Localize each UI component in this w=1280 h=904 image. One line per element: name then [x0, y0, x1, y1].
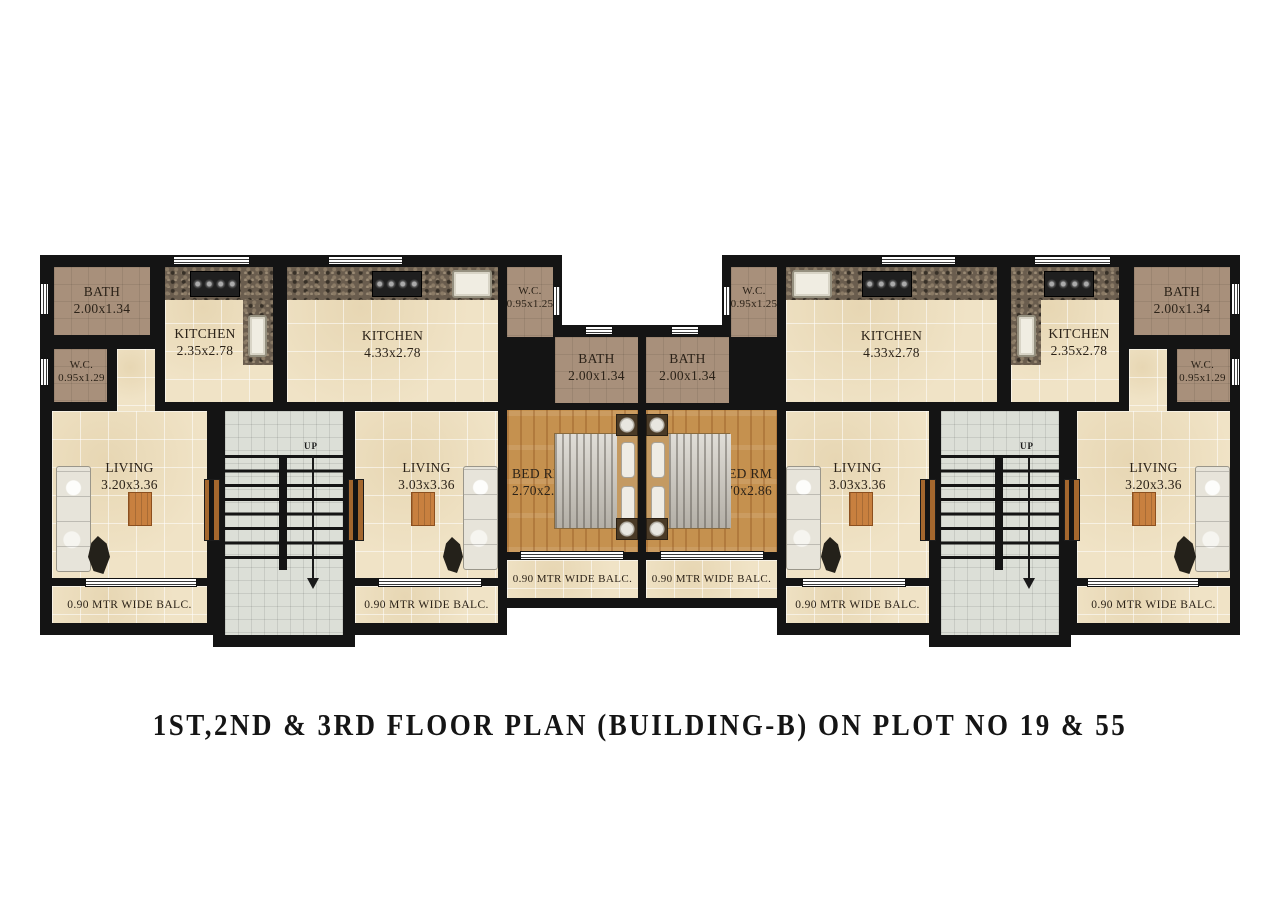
room-wc-far-left: W.C. 0.95x1.29 — [54, 349, 107, 402]
stair-direction-arrow — [1028, 456, 1030, 578]
balcony-center-left: 0.90 MTR WIDE BALC. — [355, 586, 498, 623]
room-bath-far-right: BATH 2.00x1.34 — [1134, 267, 1230, 335]
room-bath-far-left: BATH 2.00x1.34 — [54, 267, 150, 335]
balcony-far-left: 0.90 MTR WIDE BALC. — [52, 586, 207, 623]
room-bath-center-left: BATH 2.00x1.34 — [555, 337, 638, 403]
window-icon — [1034, 256, 1111, 265]
room-bath-center-right: BATH 2.00x1.34 — [646, 337, 729, 403]
room-dims-label: 2.00x1.34 — [555, 367, 638, 384]
room-dims-label: 2.00x1.34 — [54, 300, 150, 317]
stair-arrow-head — [1023, 578, 1035, 589]
stair-direction-arrow — [312, 456, 314, 578]
room-name-label: BATH — [1134, 283, 1230, 300]
bed-pillow — [621, 486, 635, 522]
room-label: W.C. 0.95x1.29 — [50, 359, 113, 385]
bed-blanket — [555, 434, 617, 528]
balcony-label: 0.90 MTR WIDE BALC. — [52, 598, 207, 610]
stairwell-foot-left — [213, 635, 355, 647]
room-dims-label: 2.00x1.34 — [646, 367, 729, 384]
bed-icon — [554, 433, 638, 529]
balcony-far-right: 0.90 MTR WIDE BALC. — [1077, 586, 1230, 623]
room-label: KITCHEN 4.33x2.78 — [786, 327, 997, 362]
room-label: KITCHEN 4.33x2.78 — [287, 327, 498, 362]
room-label: KITCHEN 2.35x2.78 — [1039, 325, 1119, 360]
sofa-icon — [786, 466, 821, 570]
room-label: W.C. 0.95x1.25 — [502, 285, 558, 311]
room-label: BATH 2.00x1.34 — [646, 350, 729, 385]
room-name-label: KITCHEN — [1039, 325, 1119, 342]
stair-arrow-head — [307, 578, 319, 589]
stair-treads — [1003, 455, 1059, 570]
room-dims-label: 0.95x1.29 — [50, 372, 113, 385]
window-icon — [723, 286, 731, 316]
room-dims-label: 0.95x1.29 — [1171, 372, 1234, 385]
room-label: BATH 2.00x1.34 — [54, 283, 150, 318]
bed-blanket — [669, 434, 731, 528]
stair-up-label: UP — [1012, 441, 1042, 451]
balcony-center-right: 0.90 MTR WIDE BALC. — [786, 586, 929, 623]
room-name-label: BATH — [646, 350, 729, 367]
window-icon — [85, 578, 197, 587]
room-dims-label: 0.95x1.25 — [726, 298, 782, 311]
sink-icon — [792, 270, 832, 298]
room-label: KITCHEN 2.35x2.78 — [165, 325, 245, 360]
window-icon — [1231, 283, 1240, 315]
bed-pillow — [651, 442, 665, 478]
door-icon — [920, 479, 936, 541]
sofa-icon — [463, 466, 498, 570]
nightstand-icon — [646, 414, 668, 436]
corridor-far-left — [117, 349, 155, 411]
window-icon — [553, 286, 561, 316]
balcony-bed-right: 0.90 MTR WIDE BALC. — [646, 560, 777, 598]
room-name-label: W.C. — [502, 285, 558, 298]
window-icon — [520, 551, 624, 560]
window-icon — [40, 358, 49, 386]
stove-icon — [372, 271, 422, 297]
stair-treads — [941, 455, 995, 570]
room-dims-label: 4.33x2.78 — [786, 344, 997, 361]
sink-icon — [1017, 315, 1036, 357]
room-wc-far-right: W.C. 0.95x1.29 — [1177, 349, 1230, 402]
room-name-label: KITCHEN — [165, 325, 245, 342]
room-name-label: BATH — [54, 283, 150, 300]
duct-notch — [562, 255, 722, 325]
window-icon — [1087, 578, 1199, 587]
stairwell-foot-right — [929, 635, 1071, 647]
balcony-label: 0.90 MTR WIDE BALC. — [1077, 598, 1230, 610]
balcony-bed-left: 0.90 MTR WIDE BALC. — [507, 560, 638, 598]
room-name-label: W.C. — [50, 359, 113, 372]
room-dims-label: 2.00x1.34 — [1134, 300, 1230, 317]
room-label: W.C. 0.95x1.25 — [726, 285, 782, 311]
nightstand-icon — [616, 518, 638, 540]
sofa-icon — [56, 466, 91, 572]
plan-title: 1ST,2ND & 3RD FLOOR PLAN (BUILDING-B) ON… — [0, 708, 1280, 743]
room-name-label: BATH — [555, 350, 638, 367]
window-icon — [671, 326, 699, 335]
sofa-icon — [1195, 466, 1230, 572]
balcony-label: 0.90 MTR WIDE BALC. — [786, 598, 929, 610]
window-icon — [173, 256, 250, 265]
room-label: BATH 2.00x1.34 — [1134, 283, 1230, 318]
table-icon — [128, 492, 152, 526]
corridor-far-right — [1129, 349, 1167, 411]
window-icon — [40, 283, 49, 315]
room-dims-label: 4.33x2.78 — [287, 344, 498, 361]
table-icon — [1132, 492, 1156, 526]
sink-icon — [452, 270, 492, 298]
floor-plan-page: BATH 2.00x1.34 W.C. 0.95x1.29 KITCHEN 2.… — [0, 0, 1280, 904]
door-icon — [1064, 479, 1080, 541]
stair-treads — [287, 455, 343, 570]
sink-icon — [248, 315, 267, 357]
stair-treads — [225, 455, 279, 570]
room-wc-center-left: W.C. 0.95x1.25 — [507, 267, 553, 337]
room-wc-center-right: W.C. 0.95x1.25 — [731, 267, 777, 337]
window-icon — [1231, 358, 1240, 386]
window-icon — [802, 578, 906, 587]
room-dims-label: 2.35x2.78 — [1039, 342, 1119, 359]
balcony-label: 0.90 MTR WIDE BALC. — [507, 573, 638, 585]
window-icon — [378, 578, 482, 587]
stair-up-label: UP — [296, 441, 326, 451]
room-label: W.C. 0.95x1.29 — [1171, 359, 1234, 385]
nightstand-icon — [616, 414, 638, 436]
bed-pillow — [621, 442, 635, 478]
table-icon — [411, 492, 435, 526]
table-icon — [849, 492, 873, 526]
window-icon — [881, 256, 956, 265]
stove-icon — [190, 271, 240, 297]
room-dims-label: 0.95x1.25 — [502, 298, 558, 311]
window-icon — [328, 256, 403, 265]
bed-icon — [646, 433, 730, 529]
window-icon — [585, 326, 613, 335]
stove-icon — [862, 271, 912, 297]
room-dims-label: 2.35x2.78 — [165, 342, 245, 359]
room-name-label: KITCHEN — [287, 327, 498, 344]
room-name-label: W.C. — [1171, 359, 1234, 372]
stair-divider-wall — [995, 455, 1003, 570]
door-icon — [204, 479, 220, 541]
stair-divider-wall — [279, 455, 287, 570]
room-name-label: KITCHEN — [786, 327, 997, 344]
bed-pillow — [651, 486, 665, 522]
window-icon — [660, 551, 764, 560]
balcony-label: 0.90 MTR WIDE BALC. — [646, 573, 777, 585]
door-icon — [348, 479, 364, 541]
nightstand-icon — [646, 518, 668, 540]
stove-icon — [1044, 271, 1094, 297]
room-name-label: W.C. — [726, 285, 782, 298]
balcony-label: 0.90 MTR WIDE BALC. — [355, 598, 498, 610]
room-label: BATH 2.00x1.34 — [555, 350, 638, 385]
